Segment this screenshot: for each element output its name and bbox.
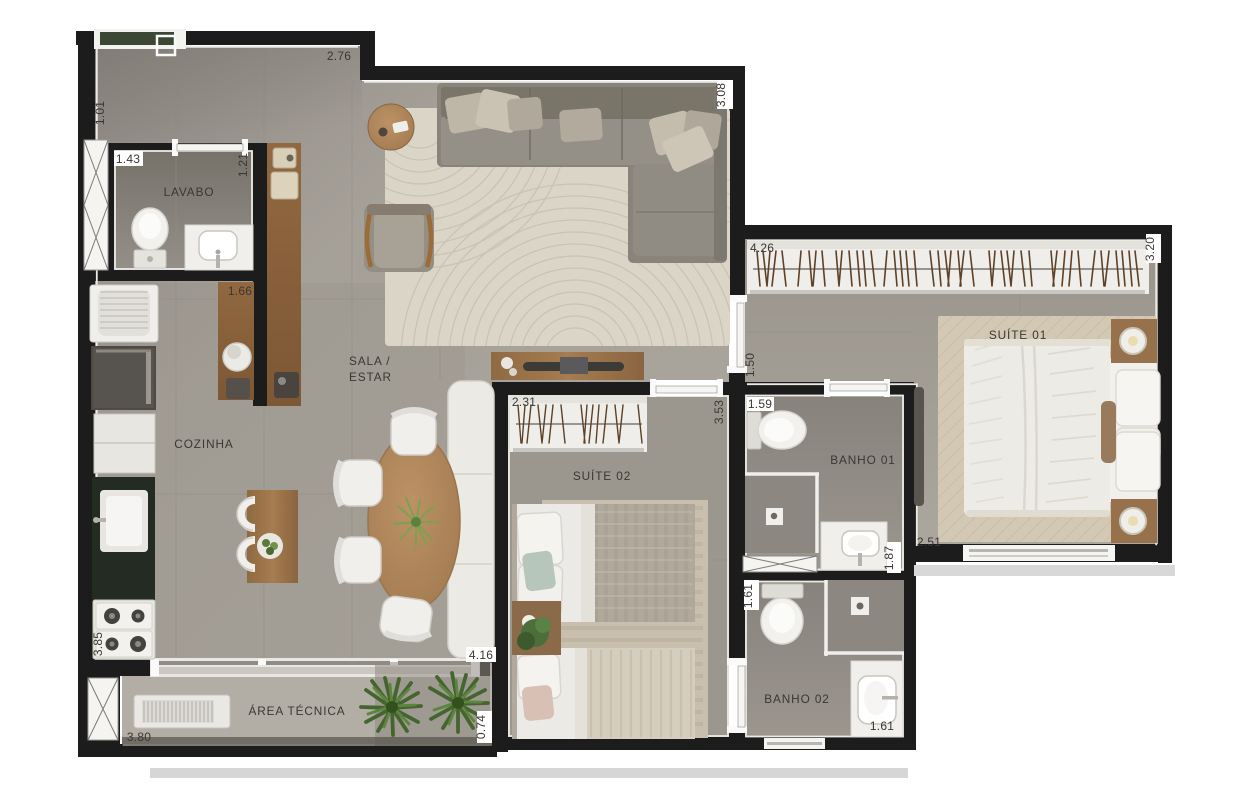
svg-text:1.50: 1.50 [743,353,757,377]
svg-text:2.51: 2.51 [917,535,941,549]
svg-text:1.66: 1.66 [228,284,252,298]
svg-text:2.31: 2.31 [512,395,536,409]
svg-text:1.01: 1.01 [93,101,107,125]
svg-text:3.85: 3.85 [91,632,105,656]
svg-text:4.26: 4.26 [750,241,774,255]
svg-text:1.87: 1.87 [882,546,896,570]
svg-text:LAVABO: LAVABO [164,185,215,199]
svg-text:3.53: 3.53 [712,400,726,424]
svg-text:2.76: 2.76 [327,49,351,63]
svg-text:COZINHA: COZINHA [174,437,233,451]
svg-text:3.08: 3.08 [714,83,728,107]
svg-text:1.21: 1.21 [236,153,250,177]
svg-text:3.20: 3.20 [1143,237,1157,261]
svg-text:1.61: 1.61 [870,719,894,733]
svg-text:ÁREA TÉCNICA: ÁREA TÉCNICA [248,704,345,718]
svg-text:BANHO 01: BANHO 01 [830,453,896,467]
svg-text:1.59: 1.59 [748,397,772,411]
svg-text:1.61: 1.61 [741,584,755,608]
svg-text:ESTAR: ESTAR [349,370,392,384]
svg-text:SALA /: SALA / [349,354,390,368]
svg-text:1.43: 1.43 [116,152,140,166]
svg-text:4.16: 4.16 [469,648,493,662]
svg-text:SUÍTE 02: SUÍTE 02 [573,469,631,483]
svg-text:3.80: 3.80 [127,730,151,744]
svg-text:0.74: 0.74 [474,715,488,739]
svg-text:SUÍTE 01: SUÍTE 01 [989,328,1047,342]
svg-text:BANHO 02: BANHO 02 [764,692,830,706]
